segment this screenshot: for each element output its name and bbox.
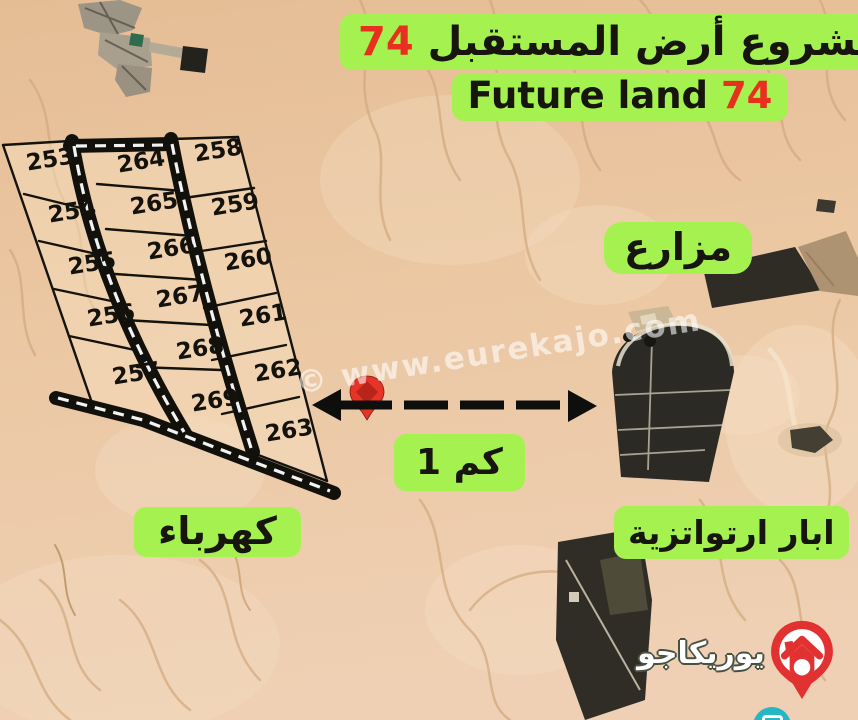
artesian-wells-label: ابار ارتواتزية <box>614 506 849 559</box>
title-english-text: Future land <box>468 74 709 117</box>
title-arabic: مشروع أرض المستقبل 74 <box>340 14 858 70</box>
title-english: Future land 74 <box>452 73 789 121</box>
title-block: مشروع أرض المستقبل 74 Future land 74 <box>398 14 842 121</box>
title-arabic-text: مشروع أرض المستقبل <box>428 19 858 65</box>
logo-pin-icon <box>768 618 836 702</box>
teal-badge-glyph <box>762 715 783 720</box>
title-arabic-number: 74 <box>358 19 414 65</box>
logo-text: يوريكاجو <box>636 636 766 671</box>
green-field-patch <box>129 33 144 47</box>
electricity-label: كهرباء <box>134 507 301 557</box>
farms-label: مزارع <box>604 222 752 274</box>
distance-label: 1 كم <box>394 434 525 491</box>
land-listing-poster: 253 254 255 256 257 264 265 266 267 268 … <box>0 0 858 720</box>
title-english-number: 74 <box>721 74 773 117</box>
dark-farm-square <box>180 46 208 73</box>
